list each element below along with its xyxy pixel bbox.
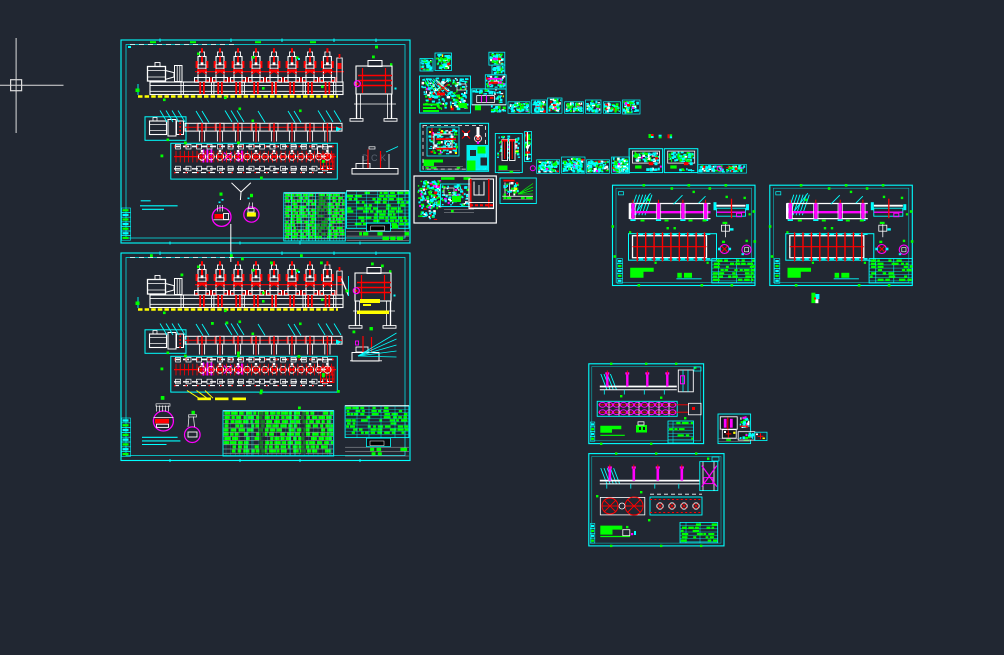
- svg-text:DCK: DCK: [362, 153, 389, 163]
